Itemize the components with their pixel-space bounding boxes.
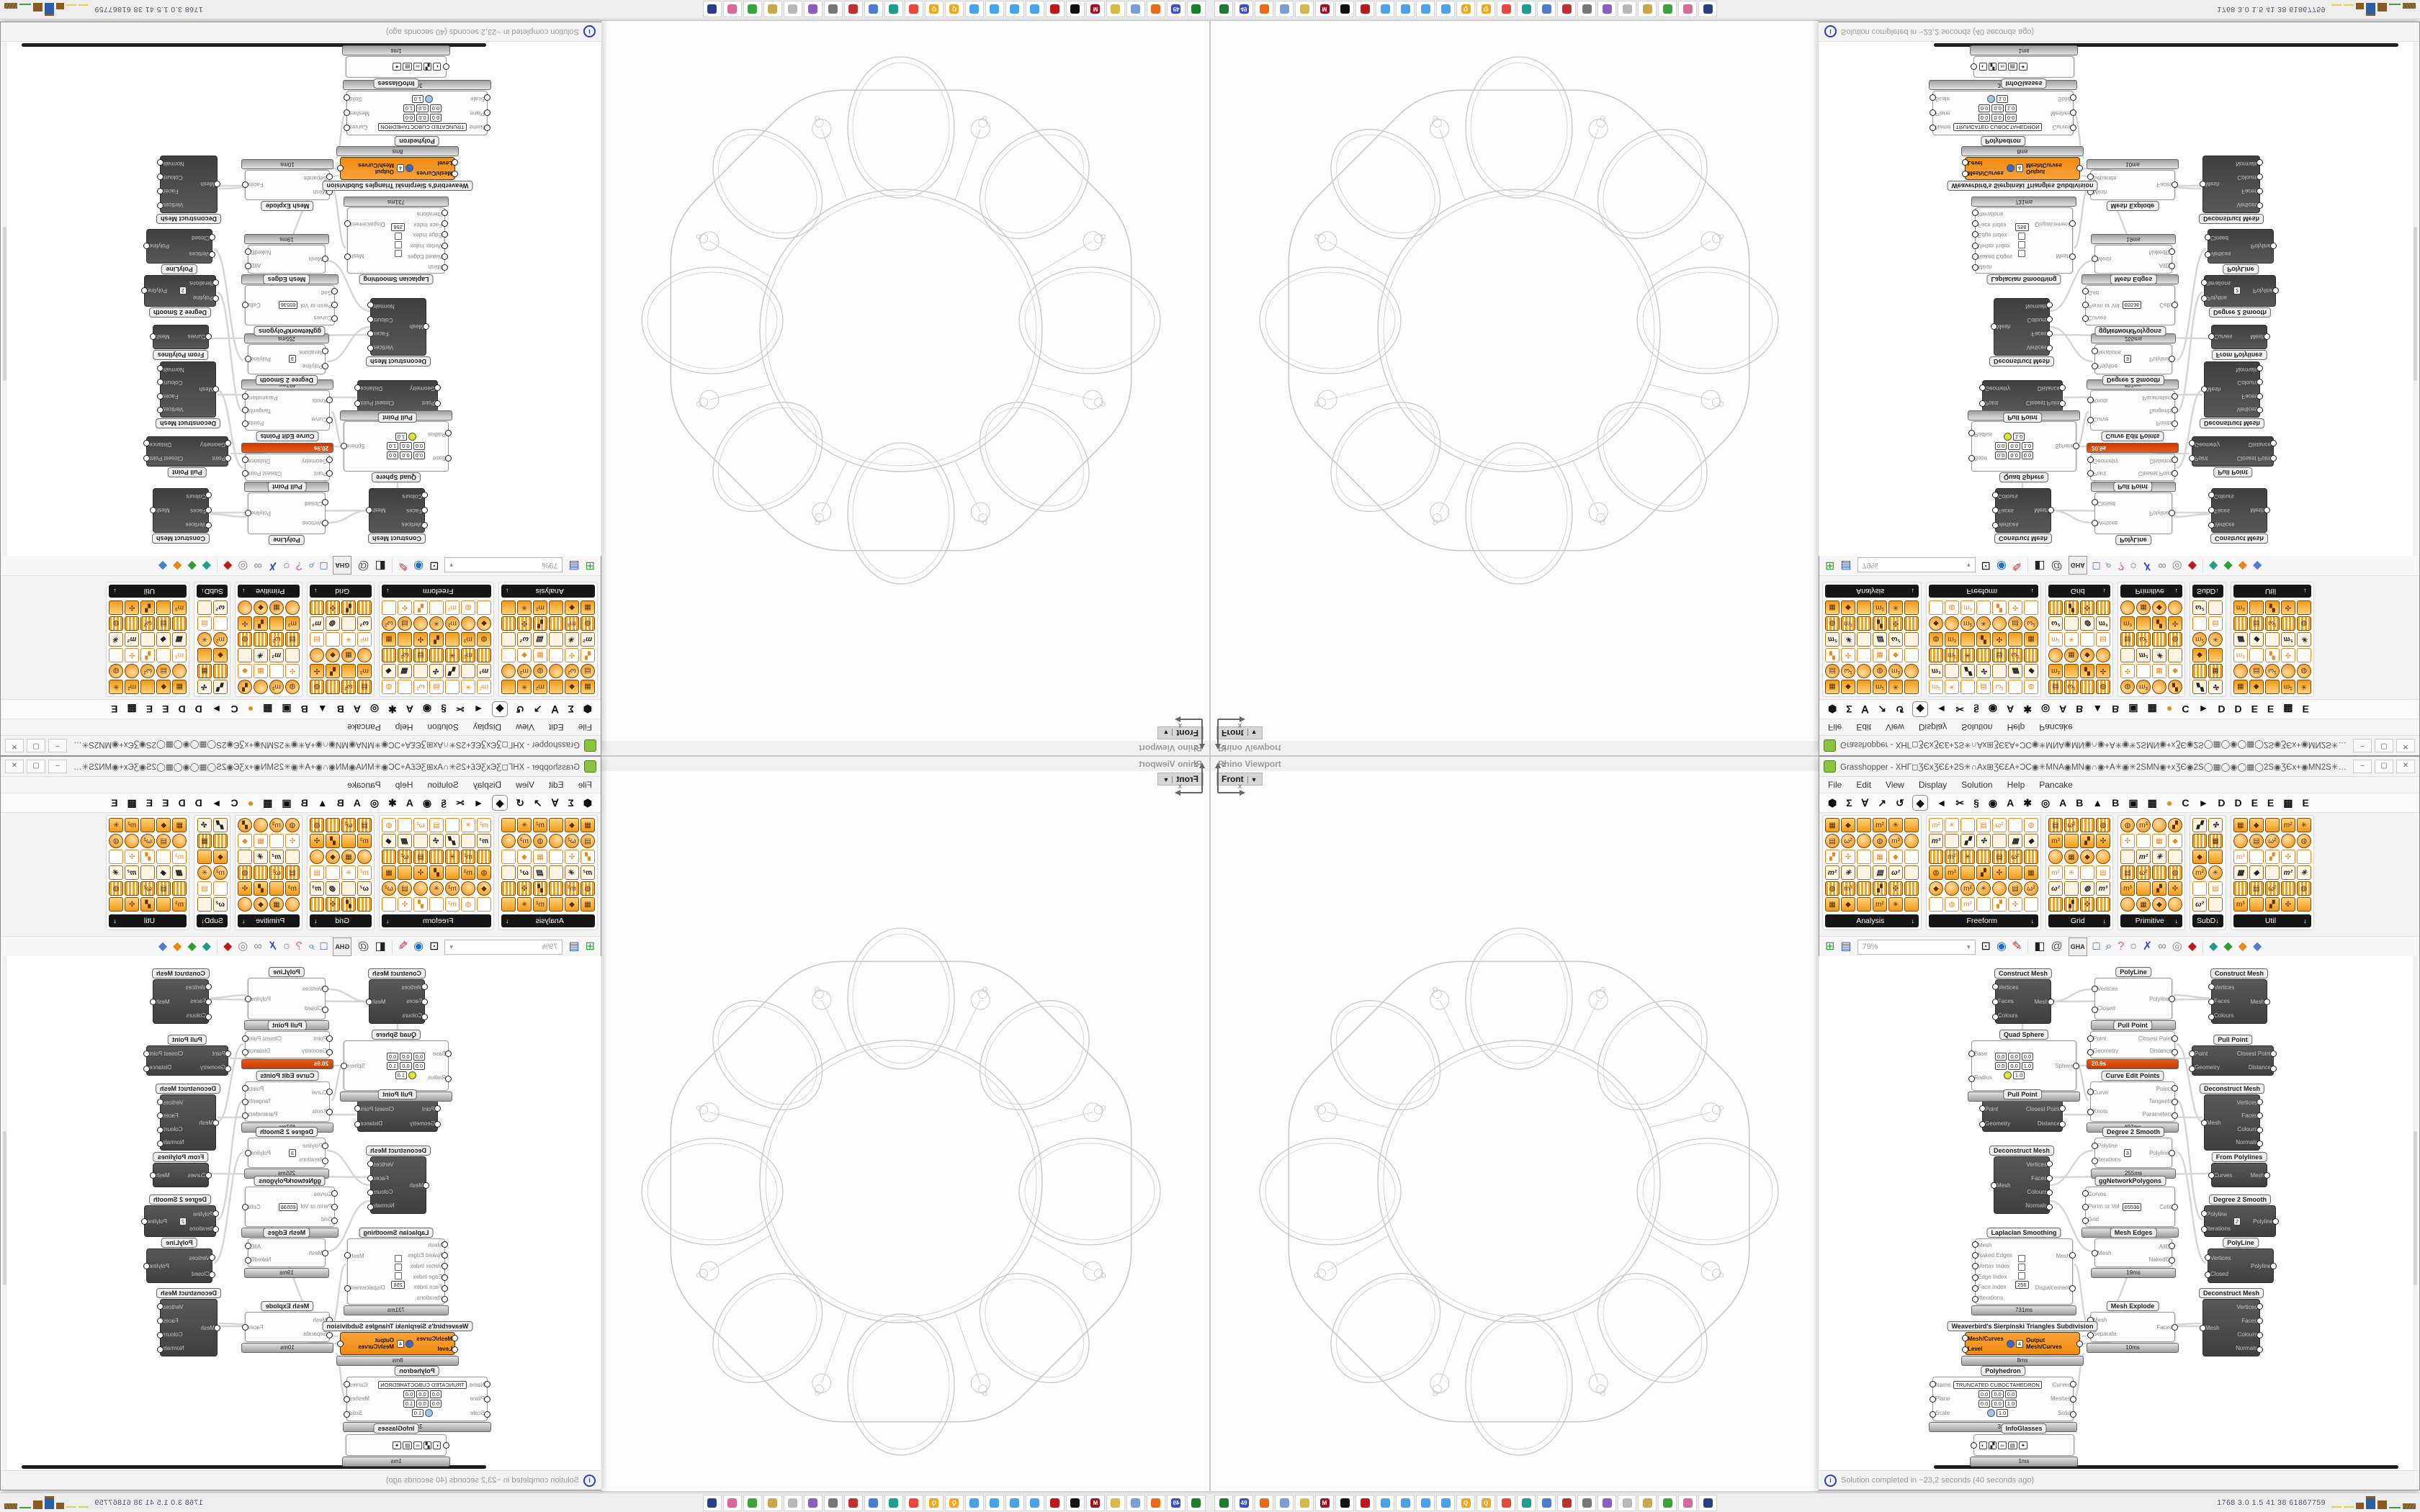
gh-node[interactable]: ggNetworkPolygonsCurvesPerim or VolGrid6… <box>245 1187 335 1227</box>
component-tab-25[interactable]: E <box>145 702 154 716</box>
component-icon[interactable] <box>413 834 428 848</box>
component-tab-27[interactable]: E <box>2300 796 2310 810</box>
component-icon[interactable]: ✳ <box>197 865 212 880</box>
component-icon[interactable]: ✣ <box>2281 850 2295 864</box>
output-port[interactable] <box>2257 1332 2263 1338</box>
input-port[interactable] <box>2200 181 2206 187</box>
component-tab-20[interactable]: C <box>230 702 240 716</box>
node-value[interactable]: 0.0 <box>2008 1062 2020 1070</box>
component-icon[interactable]: ✣ <box>517 616 532 631</box>
component-icon[interactable] <box>1960 818 1975 832</box>
close-button[interactable]: ✕ <box>5 760 24 773</box>
component-tab-1[interactable]: Σ <box>566 702 575 716</box>
output-port[interactable] <box>2076 1341 2083 1347</box>
node-value[interactable]: TRUNCATED CUBOCTAHEDRON <box>378 1381 466 1389</box>
component-icon[interactable]: ◍ <box>285 818 300 832</box>
node-value[interactable]: 0.0 <box>1995 1062 2007 1070</box>
component-icon[interactable]: ω² <box>517 632 532 647</box>
ribbon-panel-title[interactable]: Grid↓ <box>310 585 372 598</box>
component-icon[interactable] <box>501 834 516 848</box>
node-value[interactable]: ▤ <box>403 63 412 71</box>
node-value[interactable]: 0.0 <box>430 1390 442 1398</box>
component-tab-12[interactable]: ◎ <box>369 702 380 716</box>
component-icon[interactable]: ω² <box>140 834 155 848</box>
component-tab-3[interactable]: ↗ <box>1876 796 1888 810</box>
component-icon[interactable] <box>461 881 475 896</box>
ribbon-panel-title[interactable]: SubD↓ <box>197 585 228 598</box>
component-icon[interactable] <box>269 881 284 896</box>
menu-item-file[interactable]: File <box>578 722 592 732</box>
component-icon[interactable] <box>109 648 123 662</box>
output-port[interactable] <box>2270 243 2277 249</box>
gh-node[interactable]: PolyhedronNamePlaneScaleTRUNCATED CUBOCT… <box>1932 1377 2074 1421</box>
taskbar-browser-orange-icon[interactable] <box>1255 1495 1273 1511</box>
node-value[interactable] <box>2004 1071 2012 1079</box>
component-icon[interactable] <box>213 616 228 631</box>
component-icon[interactable]: ◆ <box>2080 850 2094 864</box>
component-icon[interactable] <box>1976 648 1991 662</box>
component-icon[interactable] <box>501 850 516 864</box>
component-icon[interactable]: ◆ <box>2168 664 2182 678</box>
output-port[interactable] <box>2172 1099 2178 1105</box>
output-port[interactable] <box>354 1121 361 1128</box>
gh-node[interactable]: Pull PointPointGeometryClosest PointDist… <box>357 1100 438 1132</box>
node-value[interactable] <box>1987 95 1995 103</box>
component-icon[interactable]: ▤ <box>429 818 444 832</box>
component-icon[interactable]: ▤ <box>2096 632 2110 647</box>
component-icon[interactable]: ✳ <box>2208 632 2223 647</box>
toolbar-gha-icon[interactable]: GHA <box>333 556 351 575</box>
component-icon[interactable]: m³ <box>1929 834 1943 848</box>
component-tab-5[interactable]: ◆ <box>1912 701 1929 717</box>
output-port[interactable] <box>2257 1318 2263 1324</box>
output-port[interactable] <box>344 125 350 131</box>
component-icon[interactable]: ✳ <box>2208 865 2223 880</box>
toolbar-window-icon[interactable]: □ <box>2093 557 2100 573</box>
output-port[interactable] <box>245 356 251 362</box>
component-icon[interactable]: ω² <box>2024 616 2038 631</box>
component-icon[interactable] <box>461 664 475 678</box>
node-value[interactable] <box>395 251 402 258</box>
taskbar-palette-1-icon[interactable] <box>1376 1495 1394 1511</box>
input-port[interactable] <box>2208 1172 2215 1179</box>
component-icon[interactable]: ✳ <box>1888 818 1903 832</box>
component-icon[interactable] <box>2008 632 2022 647</box>
component-tab-0[interactable]: ⬢ <box>582 702 593 716</box>
taskbar-app-navy-icon[interactable] <box>703 1495 722 1511</box>
component-icon[interactable]: ▞ <box>445 664 460 678</box>
gh-node[interactable]: Laplacian SmoothingMeshNaked EdgesVertex… <box>347 1238 445 1305</box>
component-icon[interactable] <box>2096 600 2110 615</box>
component-icon[interactable]: ✣ <box>2168 881 2182 896</box>
component-icon[interactable]: ▤ <box>310 632 324 647</box>
gh-node[interactable]: ggNetworkPolygonsCurvesPerim or VolGrid6… <box>2085 285 2175 325</box>
component-icon[interactable]: ◍ <box>326 616 340 631</box>
input-port[interactable] <box>2201 295 2208 302</box>
input-port[interactable] <box>2201 1226 2208 1233</box>
component-tab-17[interactable]: ▣ <box>2127 702 2139 716</box>
component-icon[interactable]: ✳ <box>254 850 268 864</box>
component-icon[interactable]: ▞ <box>1825 850 1839 864</box>
component-tab-11[interactable]: ✱ <box>2022 702 2033 716</box>
component-tab-2[interactable]: ∀ <box>550 796 560 810</box>
menu-item-view[interactable]: View <box>516 722 534 732</box>
component-icon[interactable] <box>445 632 460 647</box>
component-icon[interactable] <box>1945 664 1959 678</box>
toolbar-save-file-icon[interactable]: ▤ <box>1840 557 1851 573</box>
component-icon[interactable]: ◍ <box>1873 664 1887 678</box>
input-port[interactable] <box>445 1076 452 1082</box>
component-icon[interactable]: ◆ <box>2152 600 2166 615</box>
component-icon[interactable] <box>477 850 491 864</box>
component-icon[interactable]: ▞ <box>213 680 228 694</box>
input-port[interactable] <box>1962 1346 1968 1353</box>
gh-node[interactable]: From PolylinesCurvesMesh <box>153 325 209 349</box>
component-tab-14[interactable]: B <box>2074 796 2084 810</box>
component-icon[interactable]: ▞ <box>2080 664 2094 678</box>
component-icon[interactable] <box>1904 834 1919 848</box>
taskbar-browser-orange-icon[interactable] <box>1147 1 1165 18</box>
taskbar-cat-black-icon[interactable] <box>1066 1495 1085 1511</box>
component-icon[interactable]: ◍ <box>2297 664 2311 678</box>
component-icon[interactable]: ▞ <box>2152 881 2166 896</box>
close-button[interactable]: ✕ <box>5 739 24 752</box>
input-port[interactable] <box>212 1226 219 1233</box>
component-icon[interactable] <box>461 616 475 631</box>
output-port[interactable] <box>2046 316 2053 323</box>
ribbon-panel-title[interactable]: Util↓ <box>2233 585 2311 598</box>
grasshopper-titlebar[interactable]: Grasshopper - XHΓ◻ƷЄxƷЄ£+2S✳∩Ax⊞ƷЄ£A+ƆC◉… <box>1819 757 2419 777</box>
component-icon[interactable] <box>254 680 268 694</box>
output-port[interactable] <box>242 1049 248 1056</box>
node-value[interactable]: 0.0 <box>1995 452 2007 460</box>
input-port[interactable] <box>209 1254 215 1261</box>
component-tab-19[interactable]: ● <box>246 796 255 810</box>
component-icon[interactable]: ◍ <box>238 865 252 880</box>
output-port[interactable] <box>344 1396 350 1403</box>
component-icon[interactable]: m³ <box>357 664 372 678</box>
component-icon[interactable] <box>341 881 356 896</box>
minimize-button[interactable]: – <box>48 760 67 773</box>
component-icon[interactable] <box>254 865 268 880</box>
node-value[interactable]: 0.0 <box>1991 114 2003 122</box>
gh-node[interactable]: Pull PointPointGeometryClosest PointDist… <box>146 1045 228 1076</box>
component-icon[interactable]: ◆ <box>1929 616 1943 631</box>
component-icon[interactable]: m³ <box>2233 648 2248 662</box>
component-icon[interactable]: ▞ <box>2152 616 2166 631</box>
component-icon[interactable]: m² <box>461 850 475 864</box>
node-value[interactable]: 0.0 <box>403 1390 415 1398</box>
menu-item-pancake[interactable]: Pancake <box>347 722 381 732</box>
component-tab-0[interactable]: ⬢ <box>1827 796 1838 810</box>
component-icon[interactable]: m³ <box>2096 881 2110 896</box>
component-icon[interactable]: ▤ <box>197 616 212 631</box>
component-icon[interactable]: ✣ <box>1888 881 1903 896</box>
component-icon[interactable]: ▦ <box>172 818 187 832</box>
input-port[interactable] <box>1962 171 1968 177</box>
input-port[interactable] <box>322 1250 328 1256</box>
component-icon[interactable]: m³ <box>2233 897 2248 912</box>
component-icon[interactable] <box>2281 881 2295 896</box>
component-icon[interactable]: ▤ <box>413 850 428 864</box>
menu-item-file[interactable]: File <box>1828 722 1842 732</box>
input-port[interactable] <box>212 279 219 286</box>
component-icon[interactable]: ω² <box>2136 865 2151 880</box>
menu-item-solution[interactable]: Solution <box>427 780 458 790</box>
node-value[interactable]: 0.0 <box>416 104 428 112</box>
component-icon[interactable]: m² <box>1929 680 1943 694</box>
component-icon[interactable]: ◆ <box>2249 632 2264 647</box>
gh-node[interactable]: ggNetworkPolygonsCurvesPerim or VolGrid6… <box>2085 1187 2175 1227</box>
component-icon[interactable]: m² <box>357 632 372 647</box>
taskbar-app-gold-icon[interactable] <box>1638 1 1657 18</box>
component-tab-7[interactable]: ✂ <box>1954 702 1966 716</box>
component-tab-19[interactable]: ● <box>2165 796 2174 810</box>
output-port[interactable] <box>366 507 372 513</box>
component-icon[interactable]: m³ <box>1841 881 1855 896</box>
component-icon[interactable] <box>1992 664 2007 678</box>
taskbar-app-purple-icon[interactable] <box>804 1 823 18</box>
output-port[interactable] <box>337 1341 344 1347</box>
component-icon[interactable]: m² <box>2192 865 2207 880</box>
component-icon[interactable]: ◆ <box>254 600 268 615</box>
component-icon[interactable]: m² <box>1873 897 1887 912</box>
component-icon[interactable] <box>1929 850 1943 864</box>
toolbar-rings-icon[interactable]: ◎ <box>238 557 248 573</box>
component-icon[interactable]: ▞ <box>326 664 340 678</box>
output-port[interactable] <box>367 1189 374 1196</box>
component-icon[interactable]: m² <box>445 881 460 896</box>
component-icon[interactable]: m³ <box>2120 881 2135 896</box>
input-port[interactable] <box>421 1014 428 1020</box>
component-icon[interactable] <box>2249 897 2264 912</box>
input-port[interactable] <box>2087 397 2094 403</box>
close-button[interactable]: ✕ <box>2396 739 2415 752</box>
component-icon[interactable]: ▤ <box>2120 865 2135 880</box>
taskbar-cat-black-icon[interactable] <box>1335 1495 1354 1511</box>
menu-item-edit[interactable]: Edit <box>549 780 564 790</box>
input-port[interactable] <box>209 251 215 258</box>
component-icon[interactable] <box>2233 834 2248 848</box>
component-icon[interactable] <box>501 897 516 912</box>
component-icon[interactable]: ω² <box>357 881 372 896</box>
component-icon[interactable]: ▦ <box>533 648 547 662</box>
component-tab-16[interactable]: B <box>2110 796 2120 810</box>
component-icon[interactable] <box>2249 600 2264 615</box>
component-icon[interactable]: m³ <box>461 632 475 647</box>
component-icon[interactable] <box>2024 850 2038 864</box>
component-icon[interactable]: ▤ <box>2008 881 2022 896</box>
gh-node[interactable]: Curve Edit PointsCurveKnotsPointsTangent… <box>245 1081 330 1122</box>
gh-node[interactable]: Deconstruct MeshMeshVerticesFacesColours… <box>160 1299 218 1356</box>
taskbar-palette-1-icon[interactable] <box>1026 1 1044 18</box>
component-icon[interactable] <box>1904 632 1919 647</box>
gh-node[interactable]: Pull PointPointGeometryClosest PointDist… <box>2090 454 2175 481</box>
node-value[interactable] <box>395 1255 402 1262</box>
taskbar-app-silver-icon[interactable] <box>784 1 802 18</box>
component-icon[interactable]: m³ <box>2136 818 2151 832</box>
component-icon[interactable] <box>341 834 356 848</box>
component-icon[interactable]: ▤ <box>2120 632 2135 647</box>
input-port[interactable] <box>442 1285 448 1292</box>
component-icon[interactable] <box>238 600 252 615</box>
input-port[interactable] <box>442 253 448 260</box>
component-tab-23[interactable]: D <box>2233 702 2243 716</box>
component-tab-7[interactable]: ✂ <box>454 796 466 810</box>
gh-node[interactable]: Weaverbird's Sierpinski Triangles Subdiv… <box>340 157 455 180</box>
component-icon[interactable] <box>2233 616 2248 631</box>
component-icon[interactable] <box>2080 865 2094 880</box>
component-icon[interactable] <box>1904 616 1919 631</box>
component-tab-0[interactable]: ⬢ <box>1827 702 1838 716</box>
component-icon[interactable] <box>2265 865 2280 880</box>
input-port[interactable] <box>1968 1050 1975 1057</box>
input-port[interactable] <box>331 1218 338 1224</box>
toolbar-gha-icon[interactable]: GHA <box>2069 556 2087 575</box>
component-icon[interactable]: ✳ <box>461 680 475 694</box>
input-port[interactable] <box>2082 1204 2089 1210</box>
input-port[interactable] <box>442 1274 448 1281</box>
component-icon[interactable]: ▦ <box>1825 897 1839 912</box>
node-value[interactable]: 0.0 <box>400 452 411 460</box>
output-port[interactable] <box>2257 159 2263 166</box>
toolbar-balloon-icon[interactable]: ○ <box>2130 939 2137 955</box>
component-tab-15[interactable]: ▲ <box>2091 702 2104 716</box>
component-icon[interactable] <box>2208 600 2223 615</box>
input-port[interactable] <box>423 1182 429 1189</box>
component-icon[interactable] <box>1904 865 1919 880</box>
output-port[interactable] <box>2172 1204 2178 1210</box>
component-icon[interactable]: ▞ <box>1960 664 1975 678</box>
input-port[interactable] <box>214 181 220 187</box>
output-port[interactable] <box>2257 1346 2263 1353</box>
component-tab-13[interactable]: A <box>2058 702 2068 716</box>
output-port[interactable] <box>2257 188 2263 194</box>
component-icon[interactable] <box>2048 648 2063 662</box>
ribbon-panel-title[interactable]: Util↓ <box>2233 914 2311 927</box>
component-icon[interactable]: ✣ <box>429 834 444 848</box>
node-value[interactable]: 3 <box>2124 356 2131 364</box>
node-canvas[interactable]: Construct MeshVerticesFacesColoursMeshQu… <box>1 956 601 1470</box>
component-icon[interactable] <box>310 648 324 662</box>
component-icon[interactable]: ◆ <box>2024 664 2038 678</box>
canvas-zoom-input[interactable]: 79%▾ <box>444 940 563 955</box>
component-icon[interactable]: ✣ <box>2008 897 2022 912</box>
input-port[interactable] <box>452 171 458 177</box>
ribbon-panel-title[interactable]: Freeform↓ <box>1929 914 2038 927</box>
component-icon[interactable] <box>2136 616 2151 631</box>
toolbar-save-file-icon[interactable]: ▤ <box>568 939 579 955</box>
node-value[interactable]: 0.0 <box>1978 1400 1990 1408</box>
component-icon[interactable]: m³ <box>269 818 284 832</box>
menu-item-edit[interactable]: Edit <box>1856 722 1871 732</box>
gh-node[interactable]: Curve Edit PointsCurveKnotsPointsTangent… <box>2090 1081 2175 1122</box>
component-icon[interactable]: ◍ <box>109 616 123 631</box>
component-tab-2[interactable]: ∀ <box>550 702 560 716</box>
component-icon[interactable]: m³ <box>2233 850 2248 864</box>
component-icon[interactable]: ▦ <box>2208 834 2223 848</box>
toolbar-zoom-extents-icon[interactable]: ⊡ <box>1981 557 1991 573</box>
component-icon[interactable] <box>413 881 428 896</box>
node-canvas[interactable]: Construct MeshVerticesFacesColoursMeshQu… <box>1819 956 2419 1470</box>
component-icon[interactable]: ▦ <box>1825 680 1839 694</box>
output-port[interactable] <box>2172 181 2178 188</box>
output-port[interactable] <box>2048 999 2054 1005</box>
node-value[interactable]: ▤ <box>403 1441 412 1449</box>
close-button[interactable]: ✕ <box>2396 760 2415 773</box>
component-icon[interactable] <box>549 648 563 662</box>
component-icon[interactable] <box>125 616 139 631</box>
node-value[interactable]: 2 <box>179 1218 187 1225</box>
ribbon-panel-title[interactable]: Util↓ <box>109 914 187 927</box>
output-port[interactable] <box>2172 1035 2178 1042</box>
node-value[interactable] <box>2018 1264 2025 1271</box>
output-port[interactable] <box>2169 1150 2175 1156</box>
component-icon[interactable]: m² <box>125 680 139 694</box>
component-icon[interactable] <box>549 680 563 694</box>
component-icon[interactable]: m³ <box>445 600 460 615</box>
node-value[interactable] <box>405 1340 413 1348</box>
taskbar-folder-icon[interactable] <box>1295 1 1314 18</box>
component-icon[interactable]: ◍ <box>285 680 300 694</box>
output-port[interactable] <box>143 243 150 249</box>
menu-item-pancake[interactable]: Pancake <box>2039 722 2073 732</box>
component-tab-14[interactable]: B <box>336 702 346 716</box>
toolbar-gate-icon[interactable]: ◧ <box>2034 939 2045 955</box>
component-icon[interactable]: ▞ <box>2265 850 2280 864</box>
node-value[interactable]: 1.0 <box>2022 1062 2033 1070</box>
component-icon[interactable]: ▦ <box>269 600 284 615</box>
component-icon[interactable]: m³ <box>565 616 579 631</box>
component-icon[interactable] <box>310 600 324 615</box>
taskbar-badge-red-icon[interactable] <box>1355 1 1374 18</box>
node-value[interactable]: 2 <box>179 287 187 295</box>
output-port[interactable] <box>2046 1161 2053 1167</box>
node-value[interactable]: ✦ <box>393 1441 401 1449</box>
component-icon[interactable] <box>382 600 396 615</box>
gh-node[interactable]: PolyhedronNamePlaneScaleTRUNCATED CUBOCT… <box>1932 91 2074 135</box>
taskbar-app-pink-icon[interactable] <box>1678 1495 1697 1511</box>
gh-node[interactable]: PolyLineVerticesClosedPolyline243ms <box>2094 492 2172 534</box>
menu-item-help[interactable]: Help <box>2007 722 2025 732</box>
gh-node[interactable]: Deconstruct MeshMeshVerticesFacesColours… <box>2202 1299 2260 1356</box>
component-icon[interactable] <box>238 850 252 864</box>
gh-node[interactable]: Quad SphereBaseRadius0.00.00.00.00.01.01… <box>344 421 449 472</box>
input-port[interactable] <box>1992 507 1999 513</box>
gh-node[interactable]: Pull PointPointGeometryClosest PointDist… <box>146 436 228 467</box>
canvas-scrollbar[interactable] <box>2413 956 2418 1470</box>
component-icon[interactable]: ✳ <box>565 632 579 647</box>
component-icon[interactable]: ✳ <box>429 616 444 631</box>
component-icon[interactable]: ▦ <box>341 648 356 662</box>
taskbar-palette-1-icon[interactable] <box>1376 1 1394 18</box>
taskbar-q-orange-2-icon[interactable]: Q <box>1476 1 1495 18</box>
component-icon[interactable] <box>501 648 516 662</box>
component-icon[interactable]: m² <box>533 680 547 694</box>
component-icon[interactable]: m³ <box>1841 616 1855 631</box>
component-icon[interactable] <box>477 600 491 615</box>
component-icon[interactable] <box>172 881 187 896</box>
component-icon[interactable]: ▦ <box>341 850 356 864</box>
taskbar-palette-3-icon[interactable] <box>985 1495 1004 1511</box>
output-port[interactable] <box>143 1050 150 1057</box>
component-icon[interactable]: m³ <box>310 881 324 896</box>
component-icon[interactable]: m³ <box>2048 834 2063 848</box>
component-icon[interactable]: m³ <box>172 897 187 912</box>
component-icon[interactable]: ✣ <box>1841 648 1855 662</box>
component-icon[interactable] <box>1929 897 1943 912</box>
menu-item-solution[interactable]: Solution <box>427 722 458 732</box>
